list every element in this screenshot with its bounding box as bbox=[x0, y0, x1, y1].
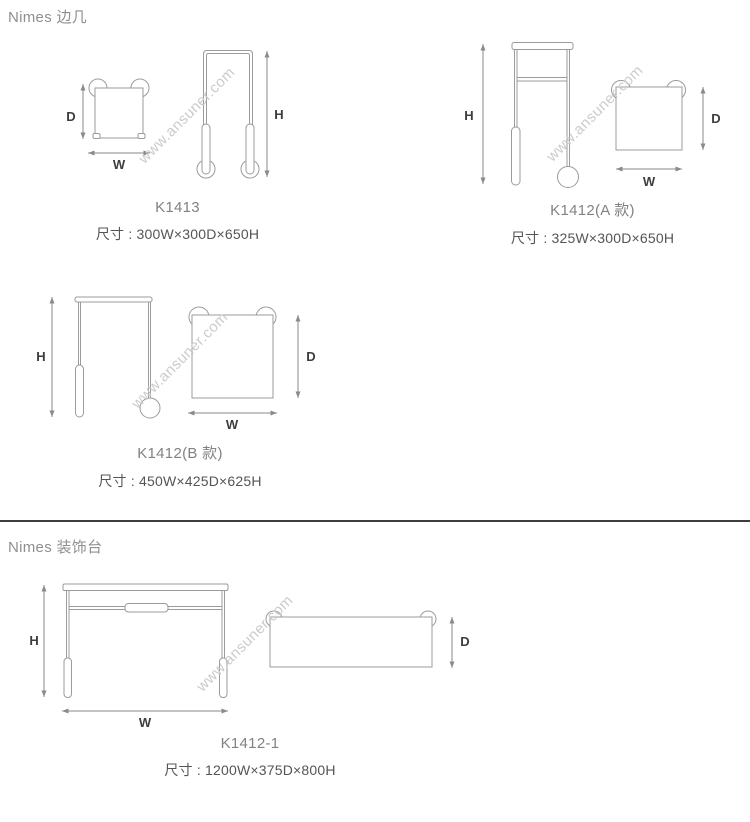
k1412a-width-arrow bbox=[616, 167, 682, 172]
k1413-diagram: D W H bbox=[60, 38, 295, 188]
k1412a-depth-arrow bbox=[701, 87, 706, 150]
k1412b-width-arrow bbox=[188, 411, 277, 416]
product-dimensions: 尺寸 : 1200W×375D×800H bbox=[30, 760, 470, 780]
k1412b-front-view bbox=[75, 297, 160, 418]
k1412-1-top-view bbox=[266, 611, 436, 667]
k1413-depth-label: D bbox=[66, 109, 75, 124]
k1413-height-arrow bbox=[265, 51, 270, 177]
k1412-1-depth-label: D bbox=[460, 634, 469, 649]
section-divider bbox=[0, 520, 750, 522]
section-title-side-tables: Nimes 边几 bbox=[8, 6, 87, 27]
k1412a-front-view bbox=[512, 43, 579, 188]
k1412a-label-block: K1412(A 款) 尺寸 : 325W×300D×650H bbox=[455, 199, 730, 248]
k1413-width-arrow bbox=[88, 151, 150, 156]
k1413-top-view bbox=[89, 79, 149, 139]
k1413-width-label: W bbox=[113, 157, 126, 172]
k1412a-diagram: H D W bbox=[455, 38, 730, 190]
k1412b-depth-arrow bbox=[296, 315, 301, 398]
k1412-1-front-view bbox=[63, 584, 228, 698]
k1412-1-height-label: H bbox=[30, 633, 39, 648]
k1412-1-label-block: K1412-1 尺寸 : 1200W×375D×800H bbox=[30, 735, 470, 780]
k1412b-width-label: W bbox=[226, 417, 239, 432]
k1412b-height-arrow bbox=[50, 297, 55, 417]
k1412-1-width-arrow bbox=[62, 709, 228, 714]
product-name: K1412(B 款) bbox=[35, 442, 325, 463]
product-dimensions: 尺寸 : 300W×300D×650H bbox=[60, 224, 295, 244]
k1412b-diagram: H D W bbox=[35, 290, 325, 440]
k1413-label-block: K1413 尺寸 : 300W×300D×650H bbox=[60, 199, 295, 244]
k1412b-label-block: K1412(B 款) 尺寸 : 450W×425D×625H bbox=[35, 442, 325, 491]
k1413-front-view bbox=[197, 51, 259, 179]
product-name: K1412(A 款) bbox=[455, 199, 730, 220]
k1412-1-width-label: W bbox=[139, 715, 152, 730]
product-dimensions: 尺寸 : 450W×425D×625H bbox=[35, 471, 325, 491]
k1413-height-label: H bbox=[274, 107, 283, 122]
k1412b-top-view bbox=[189, 307, 276, 398]
product-dimensions: 尺寸 : 325W×300D×650H bbox=[455, 228, 730, 248]
k1412a-top-view bbox=[612, 81, 686, 151]
k1412a-depth-label: D bbox=[711, 111, 720, 126]
k1412b-depth-label: D bbox=[306, 349, 315, 364]
k1412-1-depth-arrow bbox=[450, 617, 455, 668]
k1412a-height-arrow bbox=[481, 44, 486, 184]
k1413-depth-arrow bbox=[81, 84, 86, 139]
product-name: K1413 bbox=[60, 199, 295, 216]
k1412-1-height-arrow bbox=[42, 585, 47, 697]
product-name: K1412-1 bbox=[30, 735, 470, 752]
section-title-console: Nimes 装饰台 bbox=[8, 536, 102, 557]
k1412b-height-label: H bbox=[36, 349, 45, 364]
k1412a-height-label: H bbox=[464, 108, 473, 123]
k1412-1-diagram: H W D bbox=[30, 575, 480, 730]
k1412a-width-label: W bbox=[643, 174, 656, 189]
